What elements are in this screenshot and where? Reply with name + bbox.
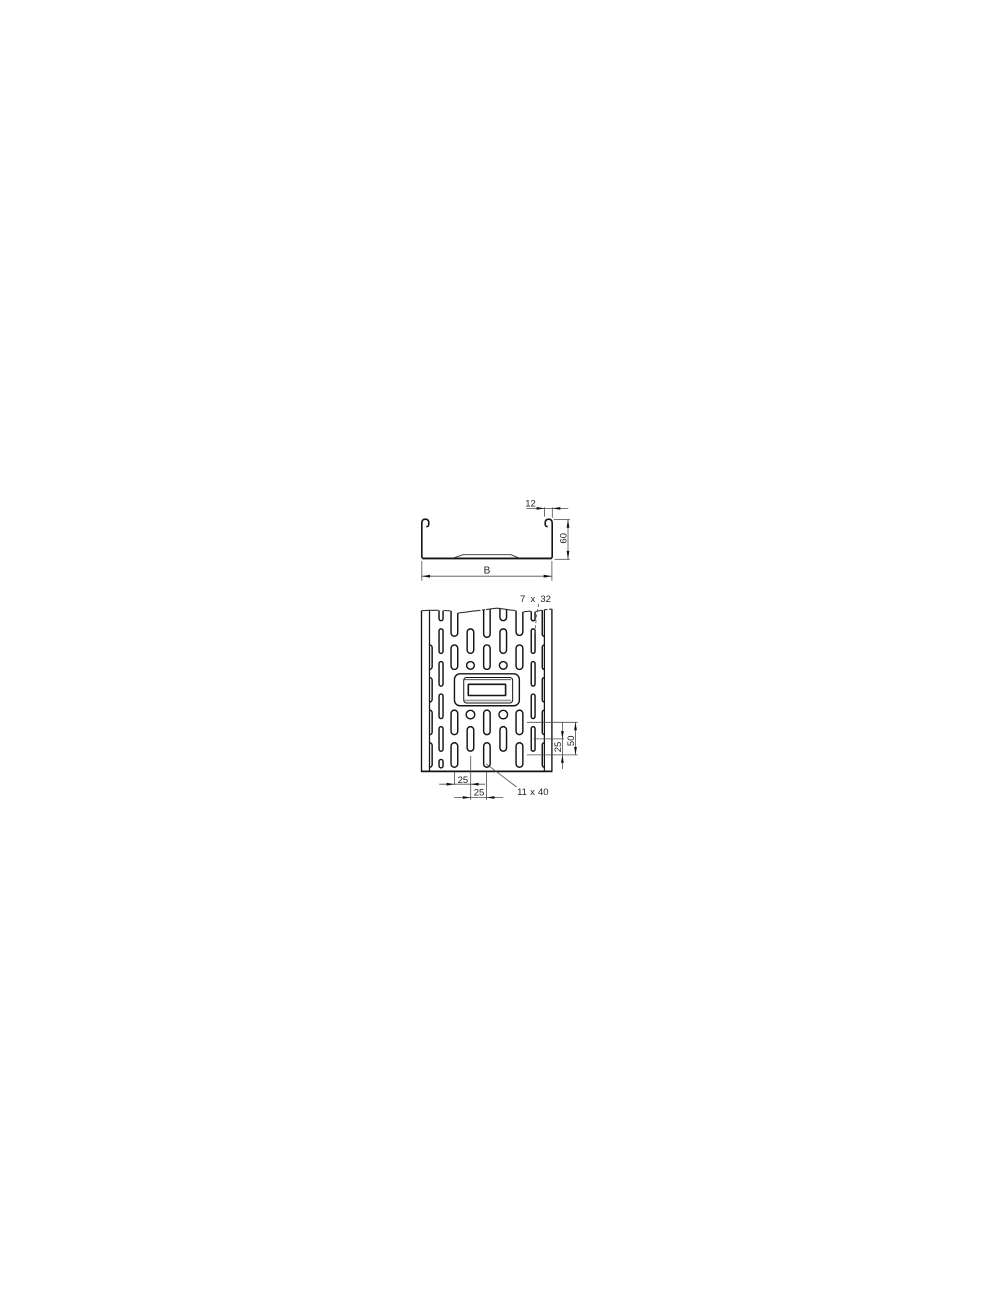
svg-text:B: B	[484, 566, 491, 577]
svg-text:11 x 40: 11 x 40	[517, 787, 548, 798]
svg-text:50: 50	[566, 736, 577, 747]
svg-text:60: 60	[559, 533, 570, 544]
svg-text:25: 25	[458, 775, 469, 786]
svg-text:12: 12	[525, 498, 536, 509]
svg-text:25: 25	[553, 742, 564, 753]
svg-text:7 x 32: 7 x 32	[520, 594, 551, 605]
svg-text:25: 25	[474, 788, 485, 799]
